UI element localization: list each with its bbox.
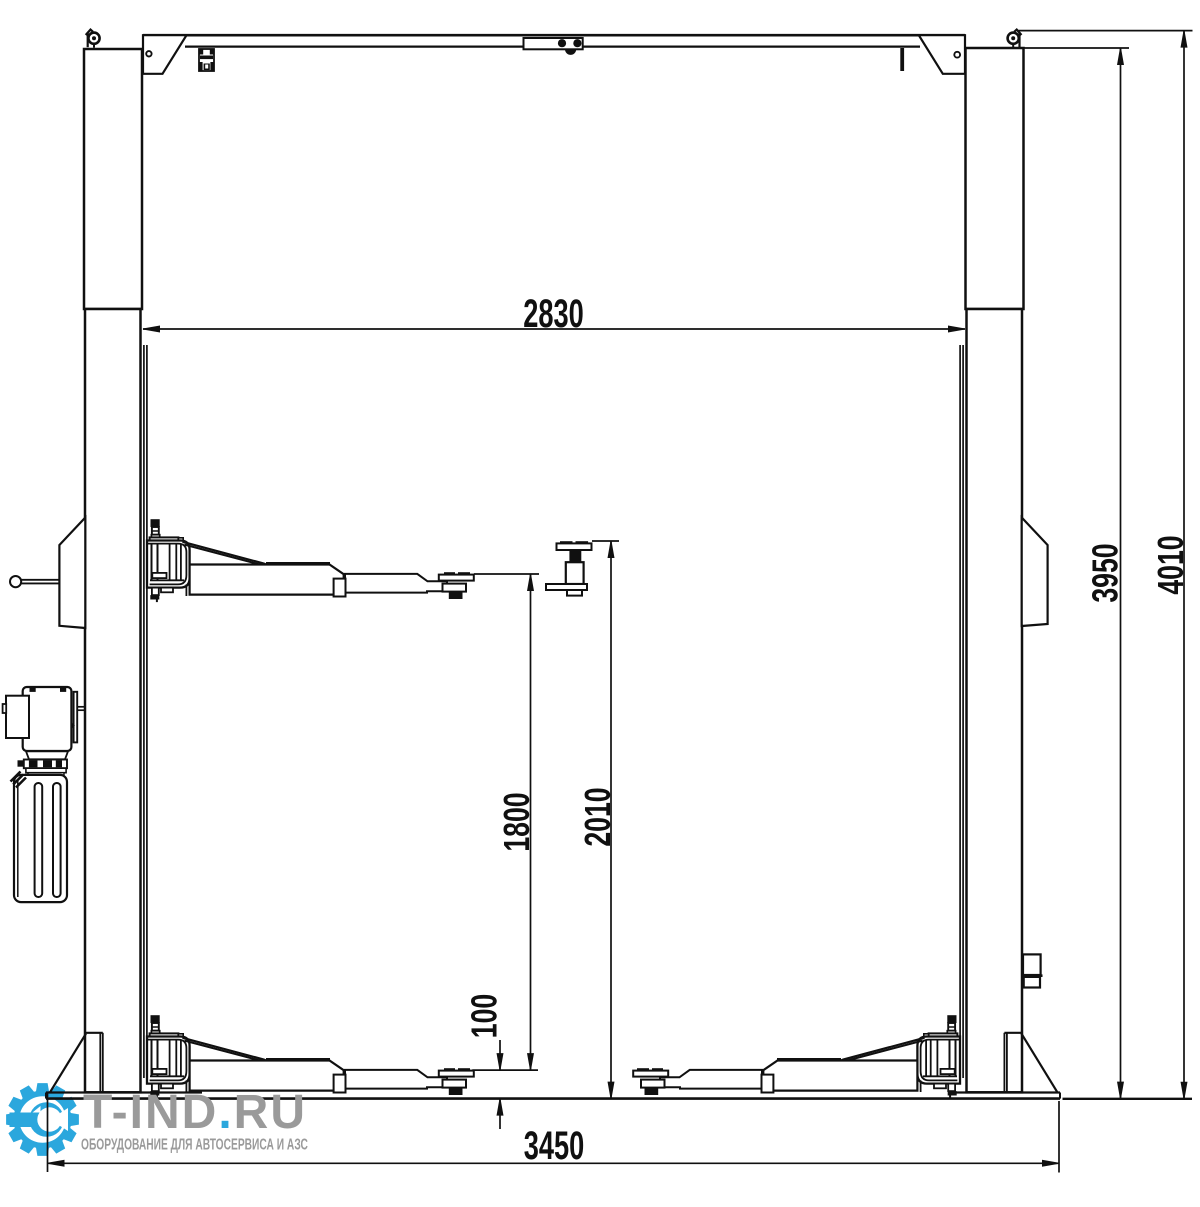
svg-text:100: 100 <box>464 994 505 1038</box>
svg-text:3450: 3450 <box>524 1124 584 1168</box>
svg-text:3950: 3950 <box>1085 543 1126 602</box>
svg-text:1800: 1800 <box>496 792 537 851</box>
svg-text:T-IND.RU: T-IND.RU <box>83 1086 307 1139</box>
svg-text:2830: 2830 <box>523 292 583 336</box>
svg-text:2010: 2010 <box>577 787 618 846</box>
svg-text:ОБОРУДОВАНИЕ ДЛЯ АВТОСЕРВИСА И: ОБОРУДОВАНИЕ ДЛЯ АВТОСЕРВИСА И АЗС <box>81 1135 308 1153</box>
svg-text:4010: 4010 <box>1150 535 1191 594</box>
